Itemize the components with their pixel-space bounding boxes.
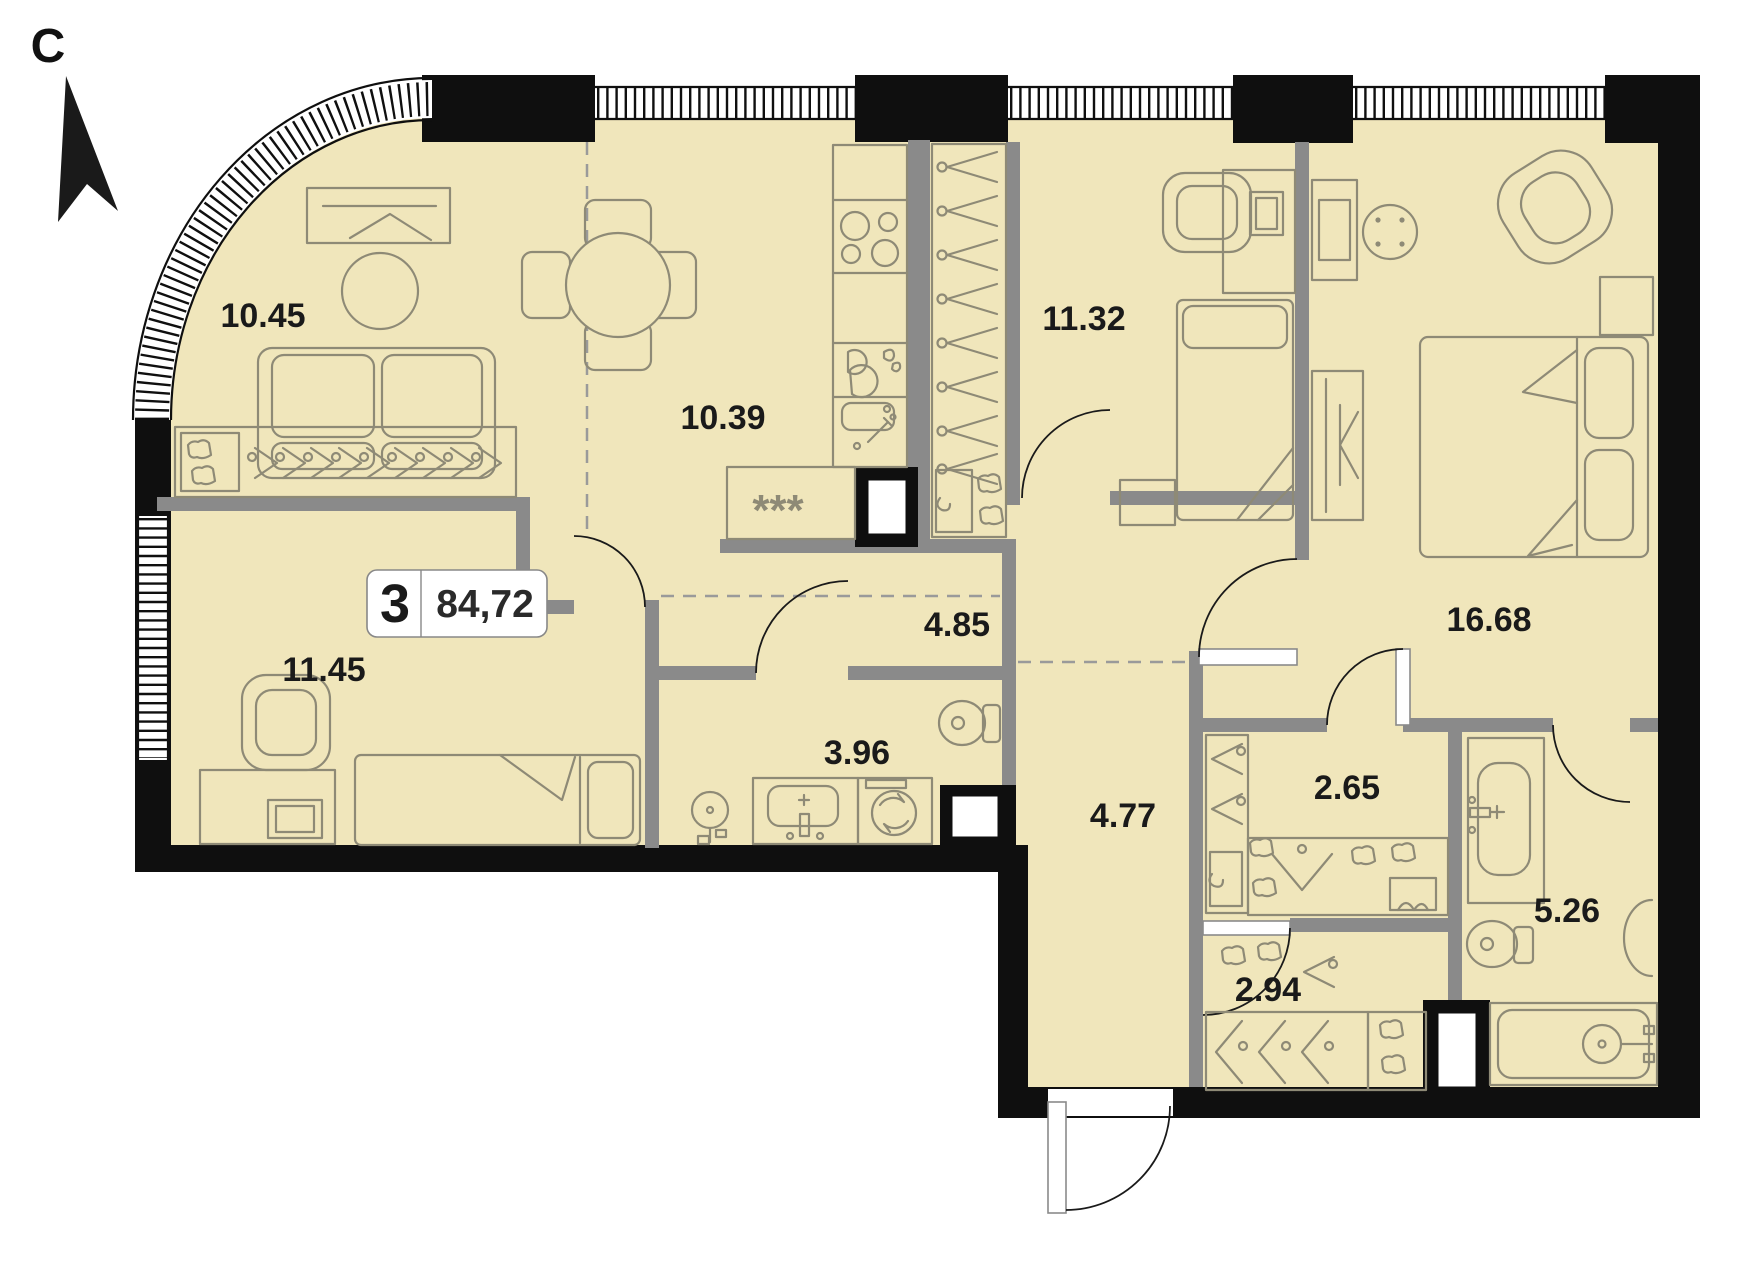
room-label-hallway: 4.85 [924, 606, 990, 644]
window-left [137, 516, 169, 760]
room-label-living: 10.45 [220, 297, 305, 335]
area-badge: 3 84,72 [367, 570, 547, 637]
north-arrow-icon [58, 76, 118, 222]
room-label-wardrobe: 2.65 [1314, 769, 1380, 807]
room-label-kitchen: 10.39 [680, 399, 765, 437]
window-top-2 [1008, 86, 1233, 120]
room-label-bedroom-top: 11.32 [1042, 300, 1125, 338]
room-label-storage: 2.94 [1235, 971, 1301, 1009]
floor-plan-canvas: *** [0, 0, 1749, 1287]
window-top-1 [595, 86, 855, 120]
badge-rooms-count: 3 [380, 574, 410, 634]
room-label-bathroom-large: 5.26 [1534, 892, 1600, 930]
room-label-master: 16.68 [1446, 601, 1531, 639]
north-indicator: С [31, 20, 118, 222]
room-label-bedroom-left: 11.45 [282, 651, 365, 689]
window-top-3 [1353, 86, 1605, 120]
floor-plan: *** [0, 0, 1749, 1287]
badge-total-area: 84,72 [436, 583, 534, 626]
room-label-bathroom-small: 3.96 [824, 734, 890, 772]
room-label-corridor: 4.77 [1090, 797, 1156, 835]
entrance-door [1048, 1102, 1170, 1213]
appliance-stars-label: *** [752, 486, 804, 535]
north-label: С [31, 20, 66, 73]
